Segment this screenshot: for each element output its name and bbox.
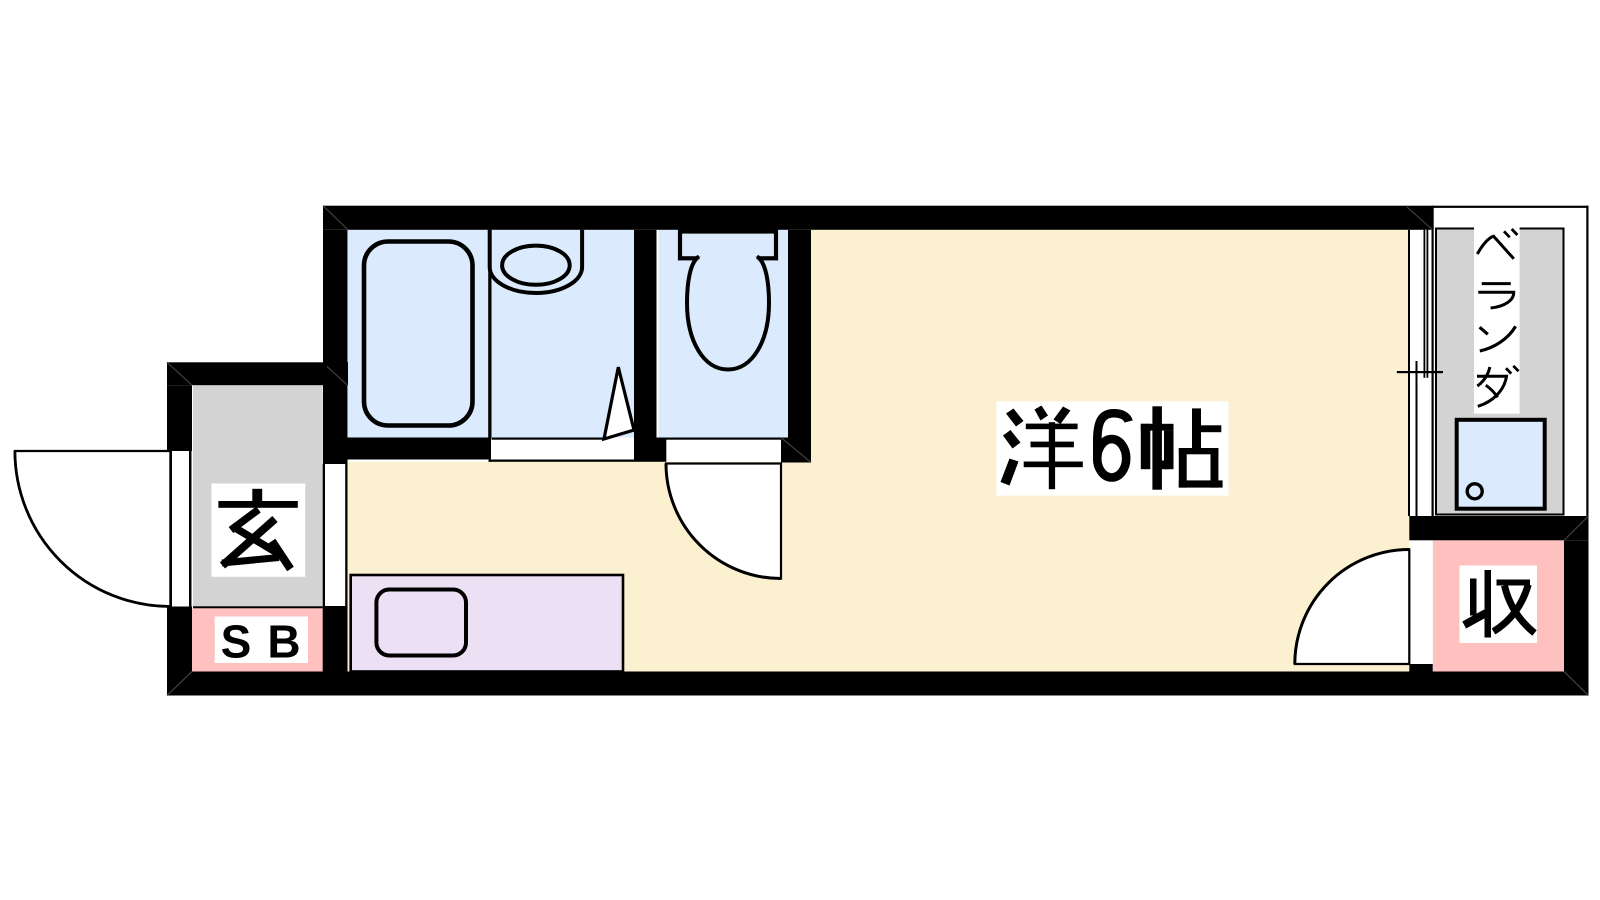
svg-text:B: B: [267, 616, 300, 668]
svg-text:S: S: [221, 616, 252, 668]
